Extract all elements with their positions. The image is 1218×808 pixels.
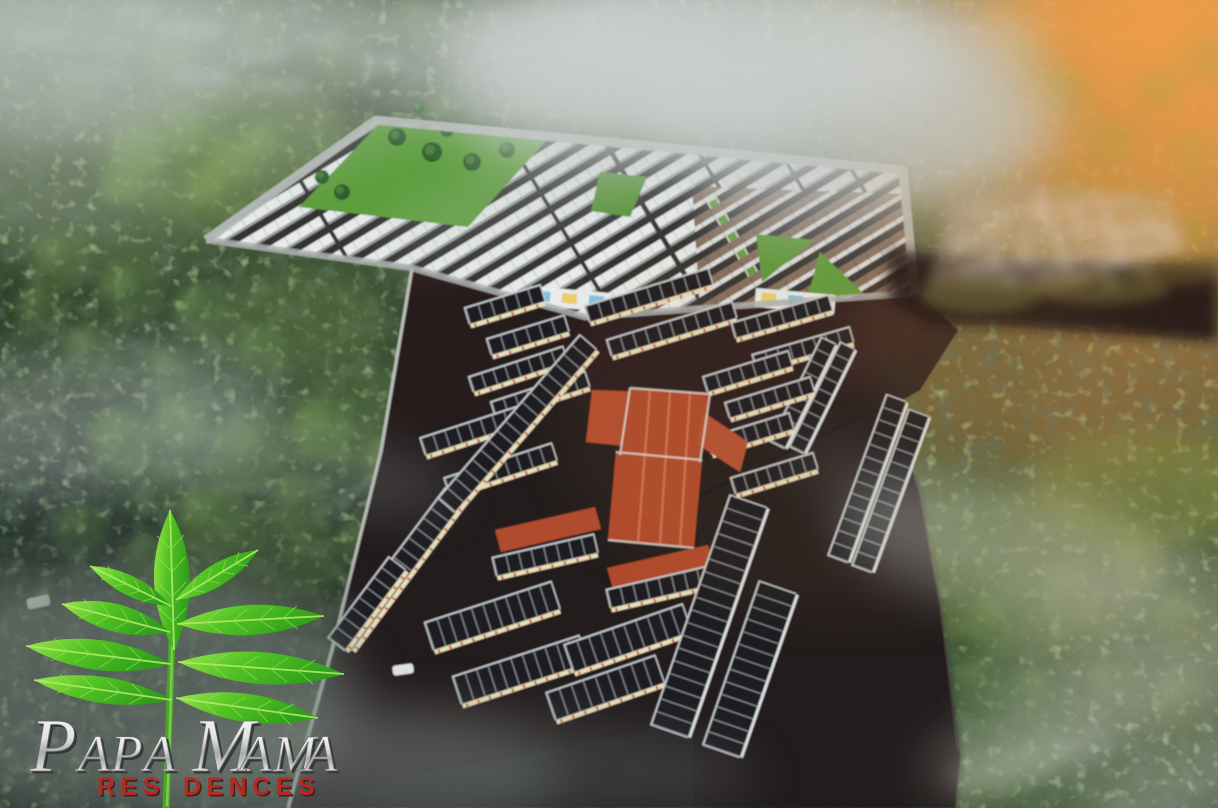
svg-text:RES: RES — [97, 773, 165, 801]
svg-text:P: P — [29, 704, 76, 788]
svg-text:DENCES: DENCES — [183, 773, 320, 801]
